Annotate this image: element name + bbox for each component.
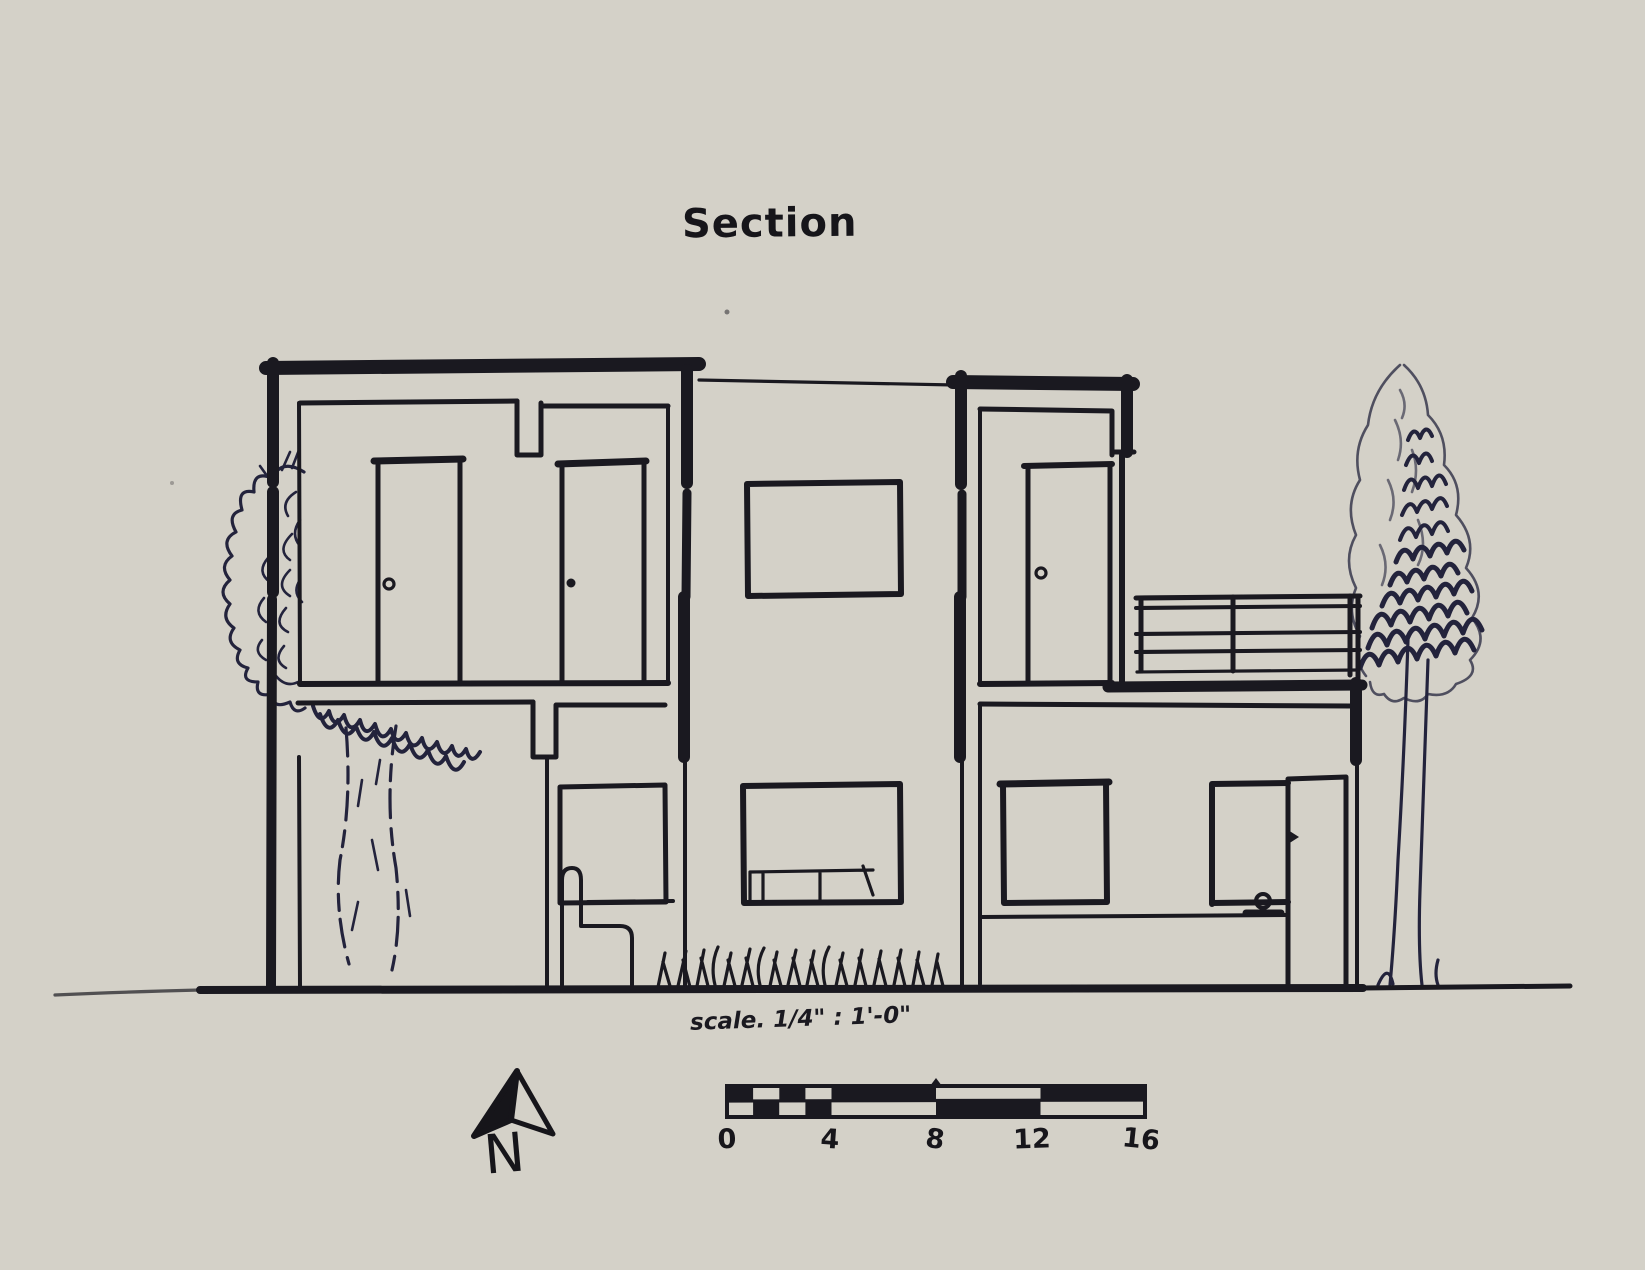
ceiling-beam-stub [517,401,541,455]
left-tree-hanging-foliage [313,706,480,770]
scale-tick-0: 0 [717,1124,737,1156]
scale-bar [727,1078,1145,1117]
left-block-section [266,363,699,986]
upper-ceiling-line [300,401,517,403]
right-tree-trunk [1378,640,1438,985]
middle-elevation [699,380,955,903]
upper-middle-window [747,482,901,596]
left-tree-trunk-flecks [352,760,410,930]
door-knob [1036,568,1046,578]
door-knob [567,579,576,588]
left-tree [223,450,480,970]
right-roof-slab [953,382,1133,384]
right-tree [1349,365,1482,985]
rear-roofline [699,380,955,385]
right-tree-upper-scribbles [1400,429,1448,540]
left-block-right-wall [668,370,687,985]
ground-ceiling-line [298,702,533,703]
balcony [1108,596,1362,687]
right-floor-line [980,683,1112,684]
scale-tick-16: 16 [1121,1122,1162,1157]
lower-middle-window [743,784,901,903]
ground-beam-stub [533,702,665,757]
sofa-outline [750,866,873,902]
second-floor-line [300,683,668,684]
left-roof-slab [266,364,699,368]
building-section-drawing [0,0,1645,1270]
section-drawing-page: Section [0,0,1645,1270]
left-tree-trunk [338,726,398,970]
balcony-railing [1136,596,1360,678]
scale-bar-blocks [727,1086,1145,1116]
lower-right-window-1 [1000,782,1109,903]
door-knob [384,579,394,589]
scale-tick-4: 4 [820,1123,841,1155]
left-tree-canopy-scribbles [258,450,302,684]
lower-left-window [560,785,673,903]
right-block-right-wall [1112,380,1134,685]
entry-door [1246,777,1346,985]
upper-door-right [558,461,646,683]
north-label: N [481,1120,527,1186]
scale-tick-12: 12 [1013,1123,1052,1155]
ground-line [55,986,1570,995]
balcony-floor-slab [1108,685,1362,687]
grass-tufts [658,947,943,987]
lower-right-volume [980,683,1357,986]
upper-door-left [374,459,463,683]
left-tree-canopy [223,466,305,711]
armchair [562,868,632,985]
lower-right-ceiling [980,704,1350,706]
wainscot-line [982,915,1287,917]
right-block-left-wall [960,376,980,985]
right-ceiling-line [980,409,1112,455]
balcony-door [1024,464,1112,683]
lower-right-window-2 [1212,783,1288,904]
door-swing-mark [1288,830,1299,844]
